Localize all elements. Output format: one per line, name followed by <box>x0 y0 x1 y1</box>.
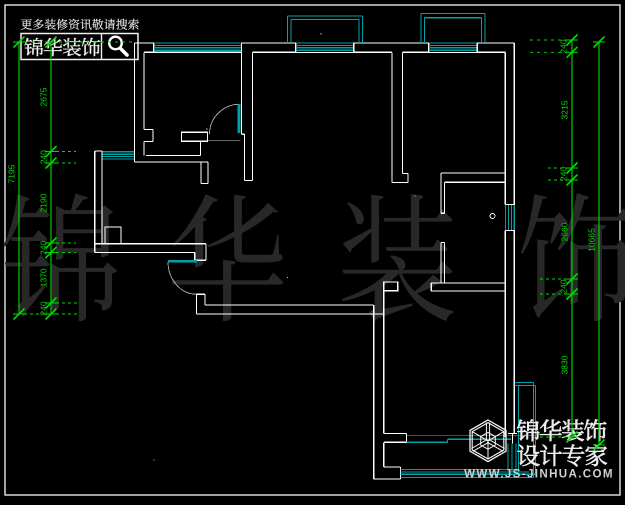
svg-text:240: 240 <box>559 39 569 53</box>
svg-text:240: 240 <box>559 279 569 293</box>
svg-text:1370: 1370 <box>39 268 49 287</box>
svg-text:2675: 2675 <box>39 87 49 106</box>
svg-text:3830: 3830 <box>560 355 570 374</box>
svg-text:3215: 3215 <box>560 100 570 119</box>
svg-text:WWW.JS-JINHUA.COM: WWW.JS-JINHUA.COM <box>464 468 614 481</box>
svg-text:240: 240 <box>559 167 569 181</box>
svg-text:240: 240 <box>39 240 49 254</box>
svg-text:2190: 2190 <box>39 193 49 212</box>
svg-text:10665: 10665 <box>587 228 597 252</box>
svg-text:2660: 2660 <box>560 222 570 241</box>
svg-text:7195: 7195 <box>7 164 17 183</box>
svg-text:240: 240 <box>39 301 49 315</box>
svg-text:240: 240 <box>39 150 49 164</box>
